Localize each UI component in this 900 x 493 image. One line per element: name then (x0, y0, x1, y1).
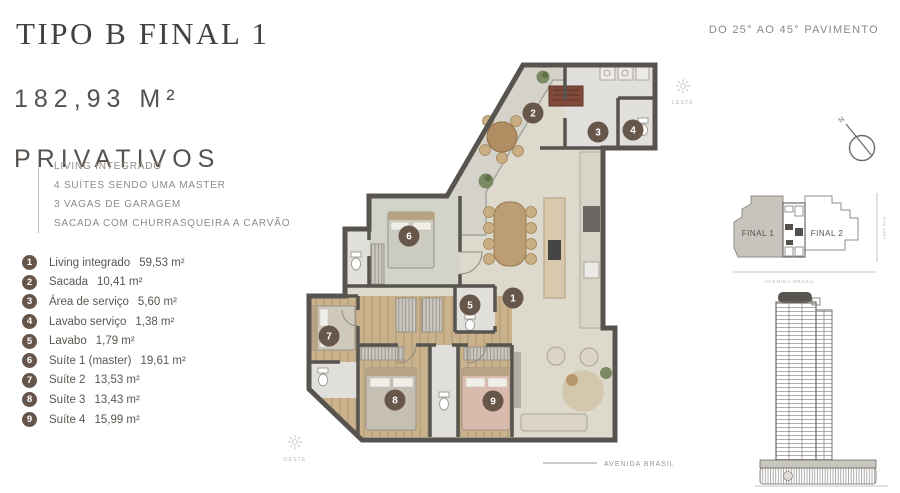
east-sun-icon (676, 79, 690, 93)
legend-item: 8Suíte 313,43 m² (22, 390, 186, 410)
legend-number-badge: 4 (22, 314, 37, 329)
armchair (580, 348, 598, 366)
keyplan-final1-label: FINAL 1 (742, 229, 775, 238)
plan-marker-8: 8 (385, 390, 406, 411)
dining-table (494, 202, 526, 266)
tower-body (776, 302, 816, 460)
svg-text:7: 7 (326, 332, 332, 343)
west-sun-icon (288, 435, 302, 449)
feature-list: LIVING INTEGRADO 4 SUÍTES SENDO UMA MAST… (38, 157, 290, 233)
compass-north-label: N (838, 116, 846, 125)
legend-item: 9Suíte 415,99 m² (22, 410, 186, 430)
plan-marker-9: 9 (483, 391, 504, 412)
tv-console (514, 352, 521, 408)
feature-item: LIVING INTEGRADO (54, 157, 290, 176)
keyplan-final2-label: FINAL 2 (811, 229, 844, 238)
plan-marker-4: 4 (623, 120, 644, 141)
legend-item: 1Living integrado59,53 m² (22, 253, 186, 273)
legend-number-badge: 8 (22, 392, 37, 407)
bath-floor (430, 345, 458, 437)
keyplan-street-bottom-label: AVENIDA BRASIL (765, 279, 815, 284)
legend-item: 7Suíte 213,53 m² (22, 371, 186, 391)
keyplan-final1-shape (734, 196, 783, 257)
legend-number-badge: 7 (22, 373, 37, 388)
feature-item: SACADA COM CHURRASQUEIRA A CARVÃO (54, 214, 290, 233)
coffee-table (566, 374, 578, 386)
floor-plan: LESTE OESTE AVENIDA BRASIL 1 2 3 4 5 6 7… (268, 52, 728, 492)
svg-text:8: 8 (392, 396, 398, 407)
page-title: TIPO B FINAL 1 (16, 16, 269, 52)
suite1-bath-floor (345, 229, 369, 286)
tower-crown (778, 292, 812, 303)
sofa (521, 414, 587, 431)
feature-item: 4 SUÍTES SENDO UMA MASTER (54, 176, 290, 195)
svg-text:3: 3 (595, 128, 601, 139)
avenue-label: AVENIDA BRASIL (604, 461, 675, 468)
keyplan-street-right-label: RUA 1300 (882, 217, 887, 240)
plan-marker-7: 7 (319, 326, 340, 347)
legend-item: 5Lavabo1,79 m² (22, 331, 186, 351)
legend-number-badge: 1 (22, 255, 37, 270)
key-plan: FINAL 1 FINAL 2 RUA 1300 AVENIDA BRASIL (720, 185, 900, 295)
legend-item: 2Sacada10,41 m² (22, 273, 186, 293)
legend-item: 6Suíte 1 (master)19,61 m² (22, 351, 186, 371)
keyplan-final2-shape (805, 196, 858, 250)
room-legend: 1Living integrado59,53 m² 2Sacada10,41 m… (22, 253, 186, 429)
svg-text:9: 9 (490, 397, 496, 408)
plan-marker-6: 6 (399, 226, 420, 247)
podium-top (760, 460, 876, 468)
legend-number-badge: 2 (22, 275, 37, 290)
keyplan-core (783, 203, 805, 257)
suite2-bath-floor (309, 362, 358, 398)
svg-text:1: 1 (510, 294, 516, 305)
podium (760, 468, 876, 484)
svg-text:2: 2 (530, 109, 536, 120)
legend-number-badge: 9 (22, 412, 37, 427)
svg-text:6: 6 (406, 232, 412, 243)
svg-text:5: 5 (467, 301, 473, 312)
building-elevation (750, 288, 890, 490)
plan-marker-5: 5 (460, 295, 481, 316)
laundry-appliances (600, 67, 649, 80)
legend-number-badge: 6 (22, 353, 37, 368)
plant (600, 367, 612, 379)
cooktop (548, 240, 561, 260)
legend-item: 4Lavabo serviço1,38 m² (22, 312, 186, 332)
feature-item: 3 VAGAS DE GARAGEM (54, 195, 290, 214)
podium-emblem (784, 472, 793, 481)
legend-number-badge: 5 (22, 334, 37, 349)
armchair (547, 347, 565, 365)
plan-marker-3: 3 (588, 122, 609, 143)
area-value: 182,93 M² (14, 85, 181, 113)
plan-marker-1: 1 (503, 288, 524, 309)
pavement-range-note: DO 25° AO 45° PAVIMENTO (709, 24, 879, 36)
round-table (487, 122, 517, 152)
plan-marker-2: 2 (523, 103, 544, 124)
legend-item: 3Área de serviço5,60 m² (22, 292, 186, 312)
legend-number-badge: 3 (22, 294, 37, 309)
svg-text:4: 4 (630, 126, 636, 137)
compass-icon: N (830, 110, 894, 174)
west-label: OESTE (284, 457, 307, 463)
east-label: LESTE (672, 100, 694, 106)
